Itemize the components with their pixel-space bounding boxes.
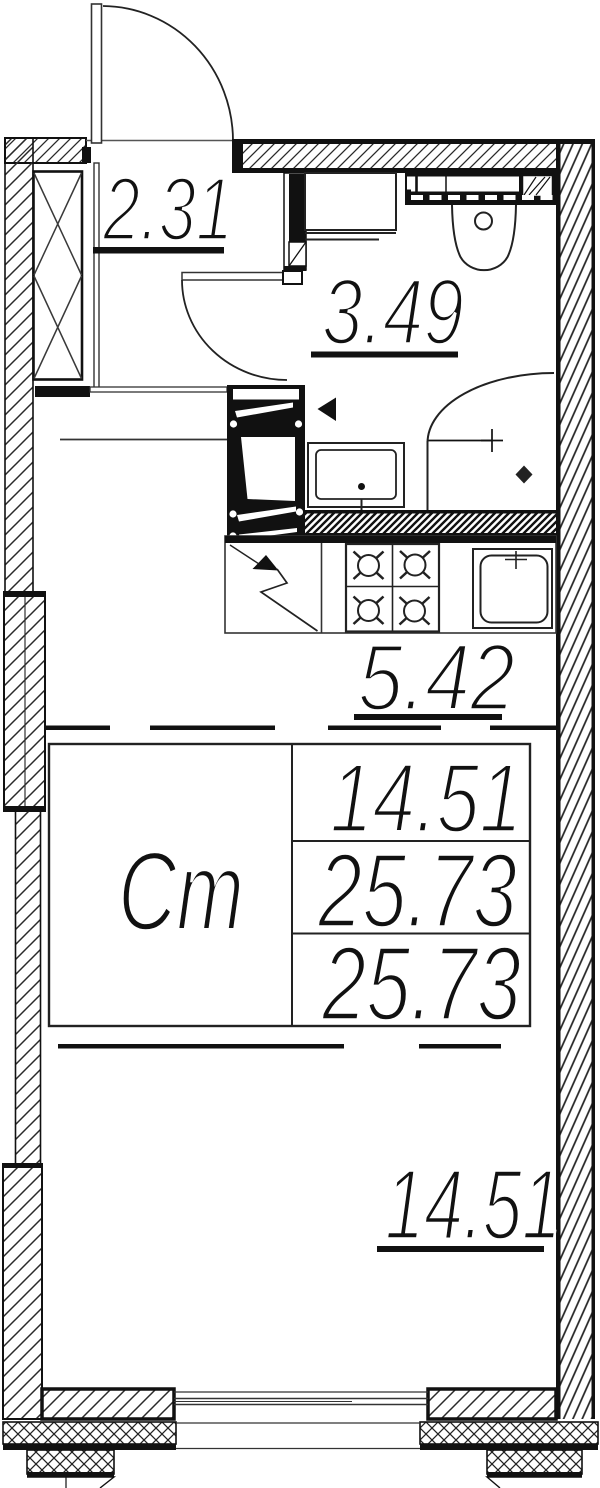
svg-text:25.73: 25.73 xyxy=(321,925,521,1043)
svg-text:3.49: 3.49 xyxy=(322,259,464,364)
svg-text:2.31: 2.31 xyxy=(102,160,233,260)
svg-text:14.51: 14.51 xyxy=(385,1149,561,1261)
svg-text:Cm: Cm xyxy=(118,829,244,954)
